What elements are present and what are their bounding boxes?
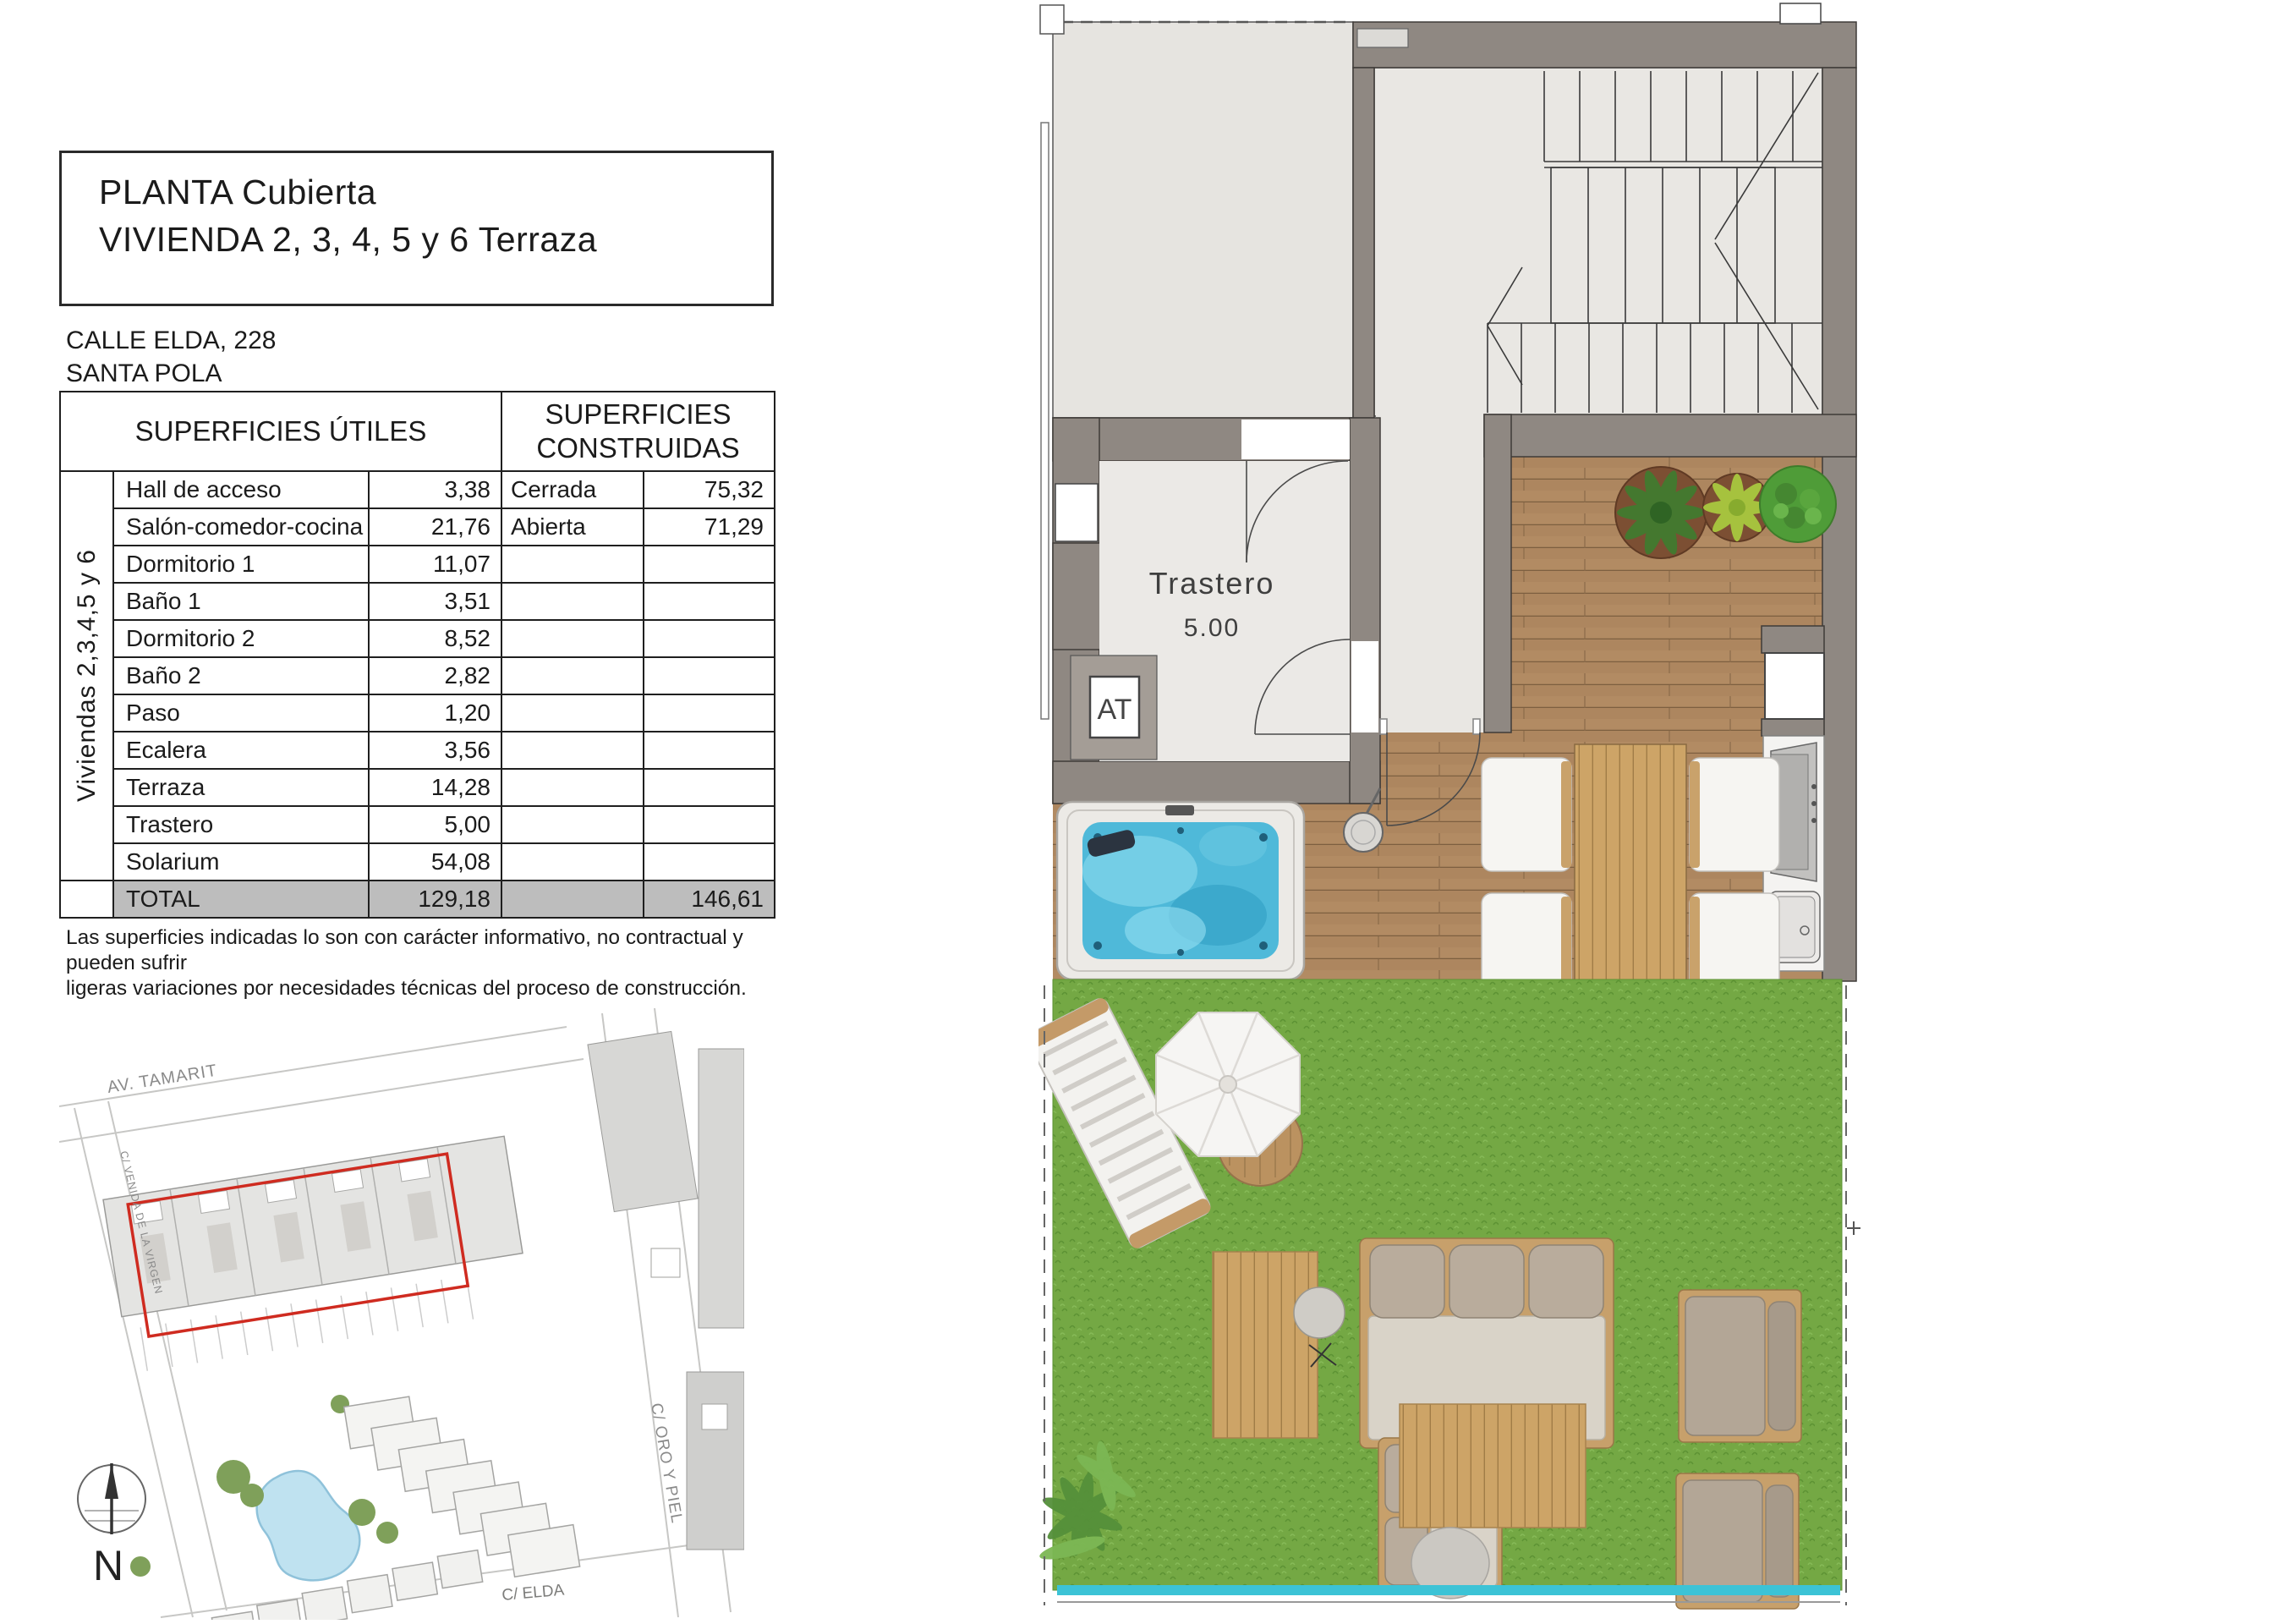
jacuzzi [1057, 802, 1304, 979]
useful-value-cell: 3,38 [369, 471, 501, 508]
storage-area-value: 5.00 [1184, 614, 1240, 642]
title-box: PLANTA Cubierta VIVIENDA 2, 3, 4, 5 y 6 … [59, 151, 774, 306]
site-location-map: AV. TAMARIT C/ ORO Y PIEL C/ ELDA C/ VEN… [59, 1007, 744, 1620]
total-empty-cell [501, 881, 644, 918]
useful-value-cell: 3,56 [369, 732, 501, 769]
useful-value-cell: 11,07 [369, 546, 501, 583]
useful-value-cell: 54,08 [369, 843, 501, 881]
constructed-name-cell [501, 583, 644, 620]
total-label-cell: TOTAL [113, 881, 369, 918]
dining-chair [1690, 758, 1779, 871]
constructed-value-cell [644, 694, 775, 732]
constructed-value-cell [644, 657, 775, 694]
room-name-cell: Dormitorio 1 [113, 546, 369, 583]
room-name-cell: Salón-comedor-cocina [113, 508, 369, 546]
table-row: Dormitorio 111,07 [60, 546, 775, 583]
parapet-notch [1040, 5, 1064, 34]
hatch-label: AT [1098, 694, 1132, 726]
room-name-cell: Ecalera [113, 732, 369, 769]
chimney-notch [1780, 3, 1821, 24]
constructed-name-cell [501, 769, 644, 806]
disclaimer-line2: ligeras variaciones por necesidades técn… [66, 976, 768, 1001]
address-block: CALLE ELDA, 228 SANTA POLA [66, 324, 276, 390]
constructed-value-cell [644, 583, 775, 620]
room-name-cell: Terraza [113, 769, 369, 806]
useful-value-cell: 21,76 [369, 508, 501, 546]
constructed-name-cell [501, 843, 644, 881]
side-table [1213, 1252, 1318, 1438]
table-row: Terraza14,28 [60, 769, 775, 806]
constructed-name-cell: Cerrada [501, 471, 644, 508]
wall-vent [1357, 29, 1408, 47]
compass-n-label: N [93, 1542, 123, 1589]
dining-chair [1482, 758, 1571, 871]
table-total-row: TOTAL 129,18 146,61 [60, 881, 775, 918]
row-group-cell: Viviendas 2,3,4,5 y 6 [60, 471, 113, 881]
constructed-name-cell [501, 694, 644, 732]
room-name-cell: Dormitorio 2 [113, 620, 369, 657]
adjacent-roof-area [1053, 22, 1353, 418]
surfaces-table: SUPERFICIES ÚTILES SUPERFICIES CONSTRUID… [59, 391, 775, 919]
constructed-surfaces-header: SUPERFICIES CONSTRUIDAS [501, 392, 775, 471]
constructed-value-cell [644, 546, 775, 583]
table-row: Baño 22,82 [60, 657, 775, 694]
useful-value-cell: 1,20 [369, 694, 501, 732]
table-row: Viviendas 2,3,4,5 y 6 Hall de acceso 3,3… [60, 471, 775, 508]
total-constructed-cell: 146,61 [644, 881, 775, 918]
constructed-name-cell: Abierta [501, 508, 644, 546]
useful-surfaces-header: SUPERFICIES ÚTILES [60, 392, 501, 471]
table-header-row: SUPERFICIES ÚTILES SUPERFICIES CONSTRUID… [60, 392, 775, 471]
table-row: Solarium54,08 [60, 843, 775, 881]
plan-title-line1: PLANTA Cubierta [99, 168, 771, 216]
constructed-value-cell: 75,32 [644, 471, 775, 508]
row-group-label: Viviendas 2,3,4,5 y 6 [73, 477, 101, 875]
storage-room-label: Trastero [1149, 566, 1275, 601]
constructed-name-cell [501, 657, 644, 694]
table-row: Trastero5,00 [60, 806, 775, 843]
storage-window [1055, 484, 1098, 541]
useful-value-cell: 5,00 [369, 806, 501, 843]
room-name-cell: Baño 1 [113, 583, 369, 620]
table-row: Paso1,20 [60, 694, 775, 732]
constructed-value-cell: 71,29 [644, 508, 775, 546]
plan-title-line2: VIVIENDA 2, 3, 4, 5 y 6 Terraza [99, 216, 771, 263]
room-name-cell: Paso [113, 694, 369, 732]
address-street: CALLE ELDA, 228 [66, 324, 276, 357]
terrace-window [1765, 653, 1824, 719]
disclaimer-line1: Las superficies indicadas lo son con car… [66, 925, 768, 976]
room-name-cell: Hall de acceso [113, 471, 369, 508]
dining-table [1575, 744, 1686, 1019]
room-name-cell: Solarium [113, 843, 369, 881]
useful-value-cell: 8,52 [369, 620, 501, 657]
constructed-value-cell [644, 769, 775, 806]
table-row: Dormitorio 28,52 [60, 620, 775, 657]
constructed-value-cell [644, 843, 775, 881]
glass-railing [1057, 1585, 1840, 1595]
armchair [1679, 1290, 1801, 1442]
table-row: Ecalera3,56 [60, 732, 775, 769]
room-name-cell: Baño 2 [113, 657, 369, 694]
plant-icon [1615, 467, 1707, 558]
total-useful-cell: 129,18 [369, 881, 501, 918]
roof-hatch: AT [1071, 656, 1157, 760]
page: { "document": { "title_line1": "PLANTA C… [0, 0, 2296, 1624]
floor-plan: Trastero 5.00 AT [1038, 0, 1863, 1624]
constructed-name-cell [501, 732, 644, 769]
table-row: Salón-comedor-cocina21,76Abierta71,29 [60, 508, 775, 546]
disclaimer: Las superficies indicadas lo son con car… [66, 925, 768, 1001]
table-row: Baño 13,51 [60, 583, 775, 620]
room-name-cell: Trastero [113, 806, 369, 843]
stair-hall [1376, 413, 1484, 734]
constructed-name-cell [501, 806, 644, 843]
constructed-name-cell [501, 546, 644, 583]
total-spacer-cell [60, 881, 113, 918]
useful-value-cell: 2,82 [369, 657, 501, 694]
constructed-value-cell [644, 620, 775, 657]
useful-value-cell: 3,51 [369, 583, 501, 620]
coffee-table [1400, 1404, 1586, 1528]
plant-icon [1760, 466, 1836, 542]
useful-value-cell: 14,28 [369, 769, 501, 806]
jacuzzi-control [1165, 805, 1194, 815]
address-city: SANTA POLA [66, 357, 276, 390]
left-parapet [1041, 123, 1049, 719]
constructed-value-cell [644, 732, 775, 769]
constructed-name-cell [501, 620, 644, 657]
stairwell-interior [1374, 68, 1822, 416]
constructed-value-cell [644, 806, 775, 843]
